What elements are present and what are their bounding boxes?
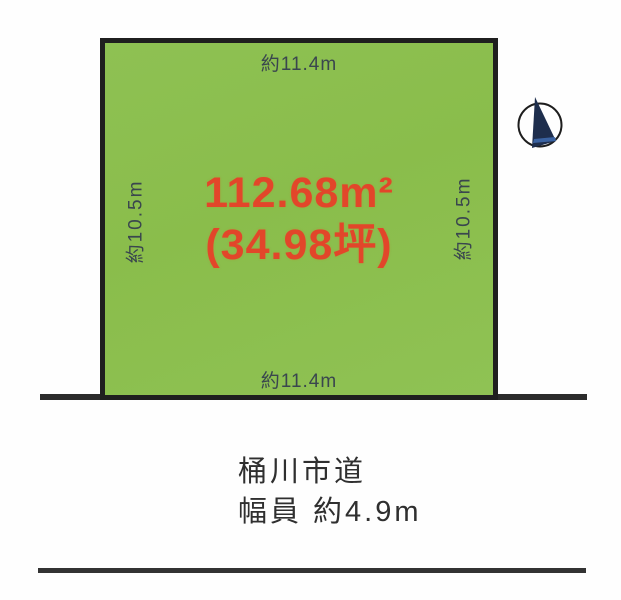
dimension-bottom-label: 約11.4m — [105, 366, 493, 393]
north-arrow-icon — [514, 94, 566, 152]
road-edge-line-lower — [38, 568, 586, 573]
road-name: 桶川市道 — [238, 452, 422, 492]
plot-area-text: 112.68m² (34.98坪) — [204, 167, 394, 272]
land-plot: 約11.4m 約11.4m 約10.5m 約10.5m 112.68m² (34… — [100, 38, 498, 400]
dimension-right-label: 約10.5m — [449, 164, 476, 274]
area-square-meters: 112.68m² — [204, 167, 394, 219]
road-label: 桶川市道 幅員 約4.9m — [238, 452, 422, 532]
area-tsubo: (34.98坪) — [204, 219, 394, 271]
dimension-top-label: 約11.4m — [105, 49, 493, 76]
dimension-left-label: 約10.5m — [121, 167, 148, 277]
land-plot-diagram: 約11.4m 約11.4m 約10.5m 約10.5m 112.68m² (34… — [0, 0, 621, 600]
road-width: 幅員 約4.9m — [238, 492, 422, 532]
